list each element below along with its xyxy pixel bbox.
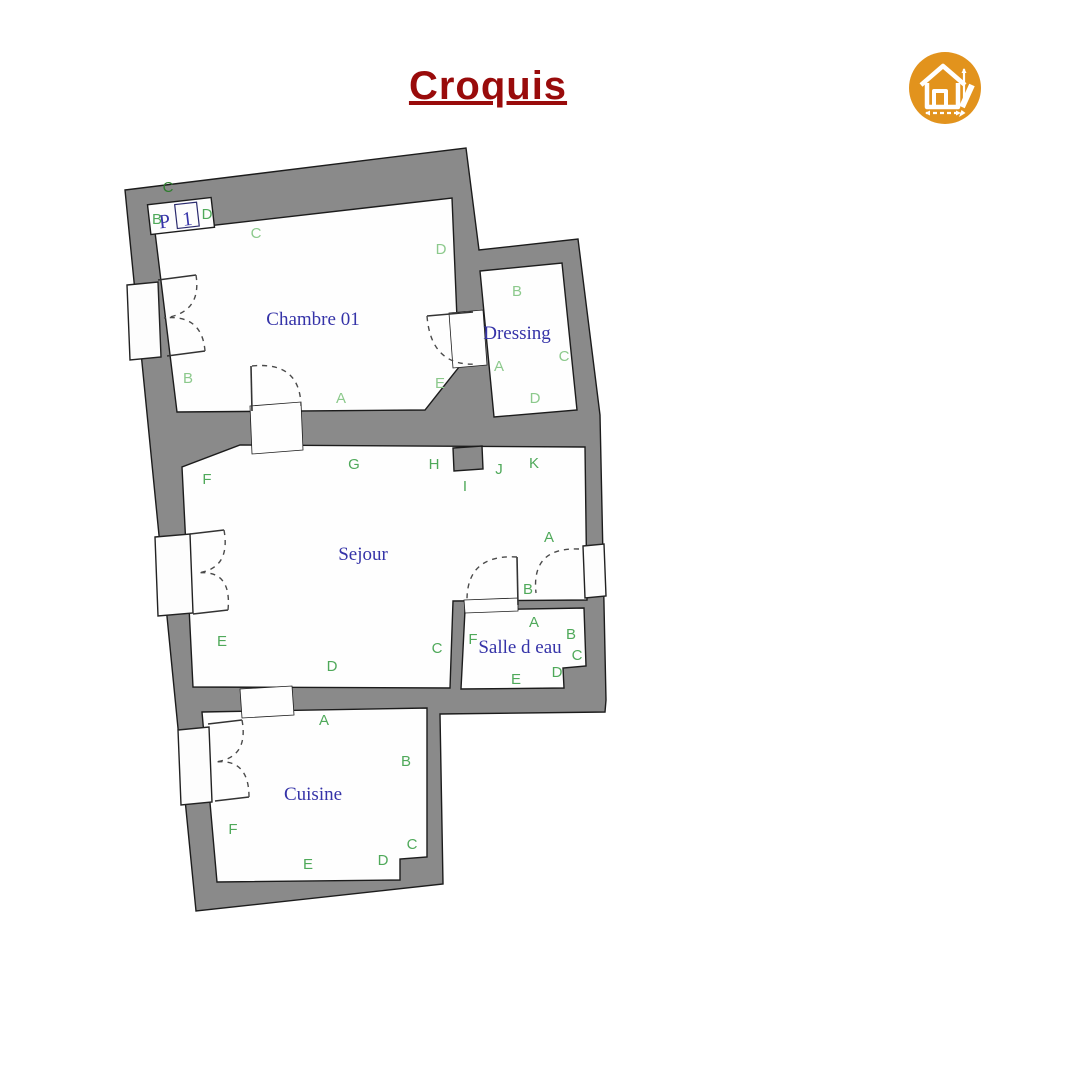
chambre-door-leaf <box>251 366 252 411</box>
wall-label: E <box>303 856 313 873</box>
room-name: Sejour <box>338 544 388 565</box>
room-name: Cuisine <box>284 784 342 805</box>
sejour-window <box>155 534 193 616</box>
wall-label: A <box>336 390 346 407</box>
room-name: Dressing <box>483 323 551 344</box>
wall-label: A <box>544 529 554 546</box>
wall-label: C <box>163 179 174 196</box>
wall-label: B <box>183 370 193 387</box>
wall-label: A <box>529 614 539 631</box>
wall-label: D <box>378 852 389 869</box>
opening-sejour-salle <box>464 598 518 613</box>
wall-label: B <box>401 753 411 770</box>
wall-label: B <box>523 581 533 598</box>
wall-label: B <box>152 211 162 228</box>
wall-label: F <box>228 821 237 838</box>
wall-label: G <box>348 456 360 473</box>
wall-label: A <box>494 358 504 375</box>
chambre-interior <box>155 198 459 412</box>
opening-sejour-cuisine <box>240 686 294 718</box>
opening-chambre-dressing <box>449 310 487 368</box>
wall-label: D <box>436 241 447 258</box>
wall-label: C <box>251 225 262 242</box>
wall-label: D <box>202 206 213 223</box>
room-name: Chambre 01 <box>266 309 359 330</box>
wall-label: J <box>495 461 503 478</box>
wall-label: D <box>552 664 563 681</box>
wall-label: C <box>559 348 570 365</box>
wall-label: E <box>435 375 445 392</box>
wall-label: D <box>530 390 541 407</box>
wall-label: C <box>432 640 443 657</box>
wall-label: H <box>429 456 440 473</box>
wall-label: D <box>327 658 338 675</box>
room-name: Salle d eau <box>478 637 562 658</box>
wall-label: I <box>463 478 467 495</box>
chambre-window <box>127 282 161 360</box>
pillar <box>453 446 483 471</box>
salle-door-leaf <box>517 557 518 605</box>
wall-label: B <box>566 626 576 643</box>
floor-plan-svg: P 1 CBDCDBAEBACDFGHIJKABEDCAFBCDEABFEDC … <box>0 0 1066 1080</box>
sejour-right-window <box>583 544 606 598</box>
wall-label: B <box>512 283 522 300</box>
wall-label: C <box>407 836 418 853</box>
wall-label: F <box>202 471 211 488</box>
wall-label: K <box>529 455 539 472</box>
wall-label: E <box>511 671 521 688</box>
wall-label: C <box>572 647 583 664</box>
wall-label: E <box>217 633 227 650</box>
wall-label: A <box>319 712 329 729</box>
opening-chambre-sejour <box>250 402 303 454</box>
cuisine-window <box>178 727 212 805</box>
wall-label: F <box>468 631 477 648</box>
